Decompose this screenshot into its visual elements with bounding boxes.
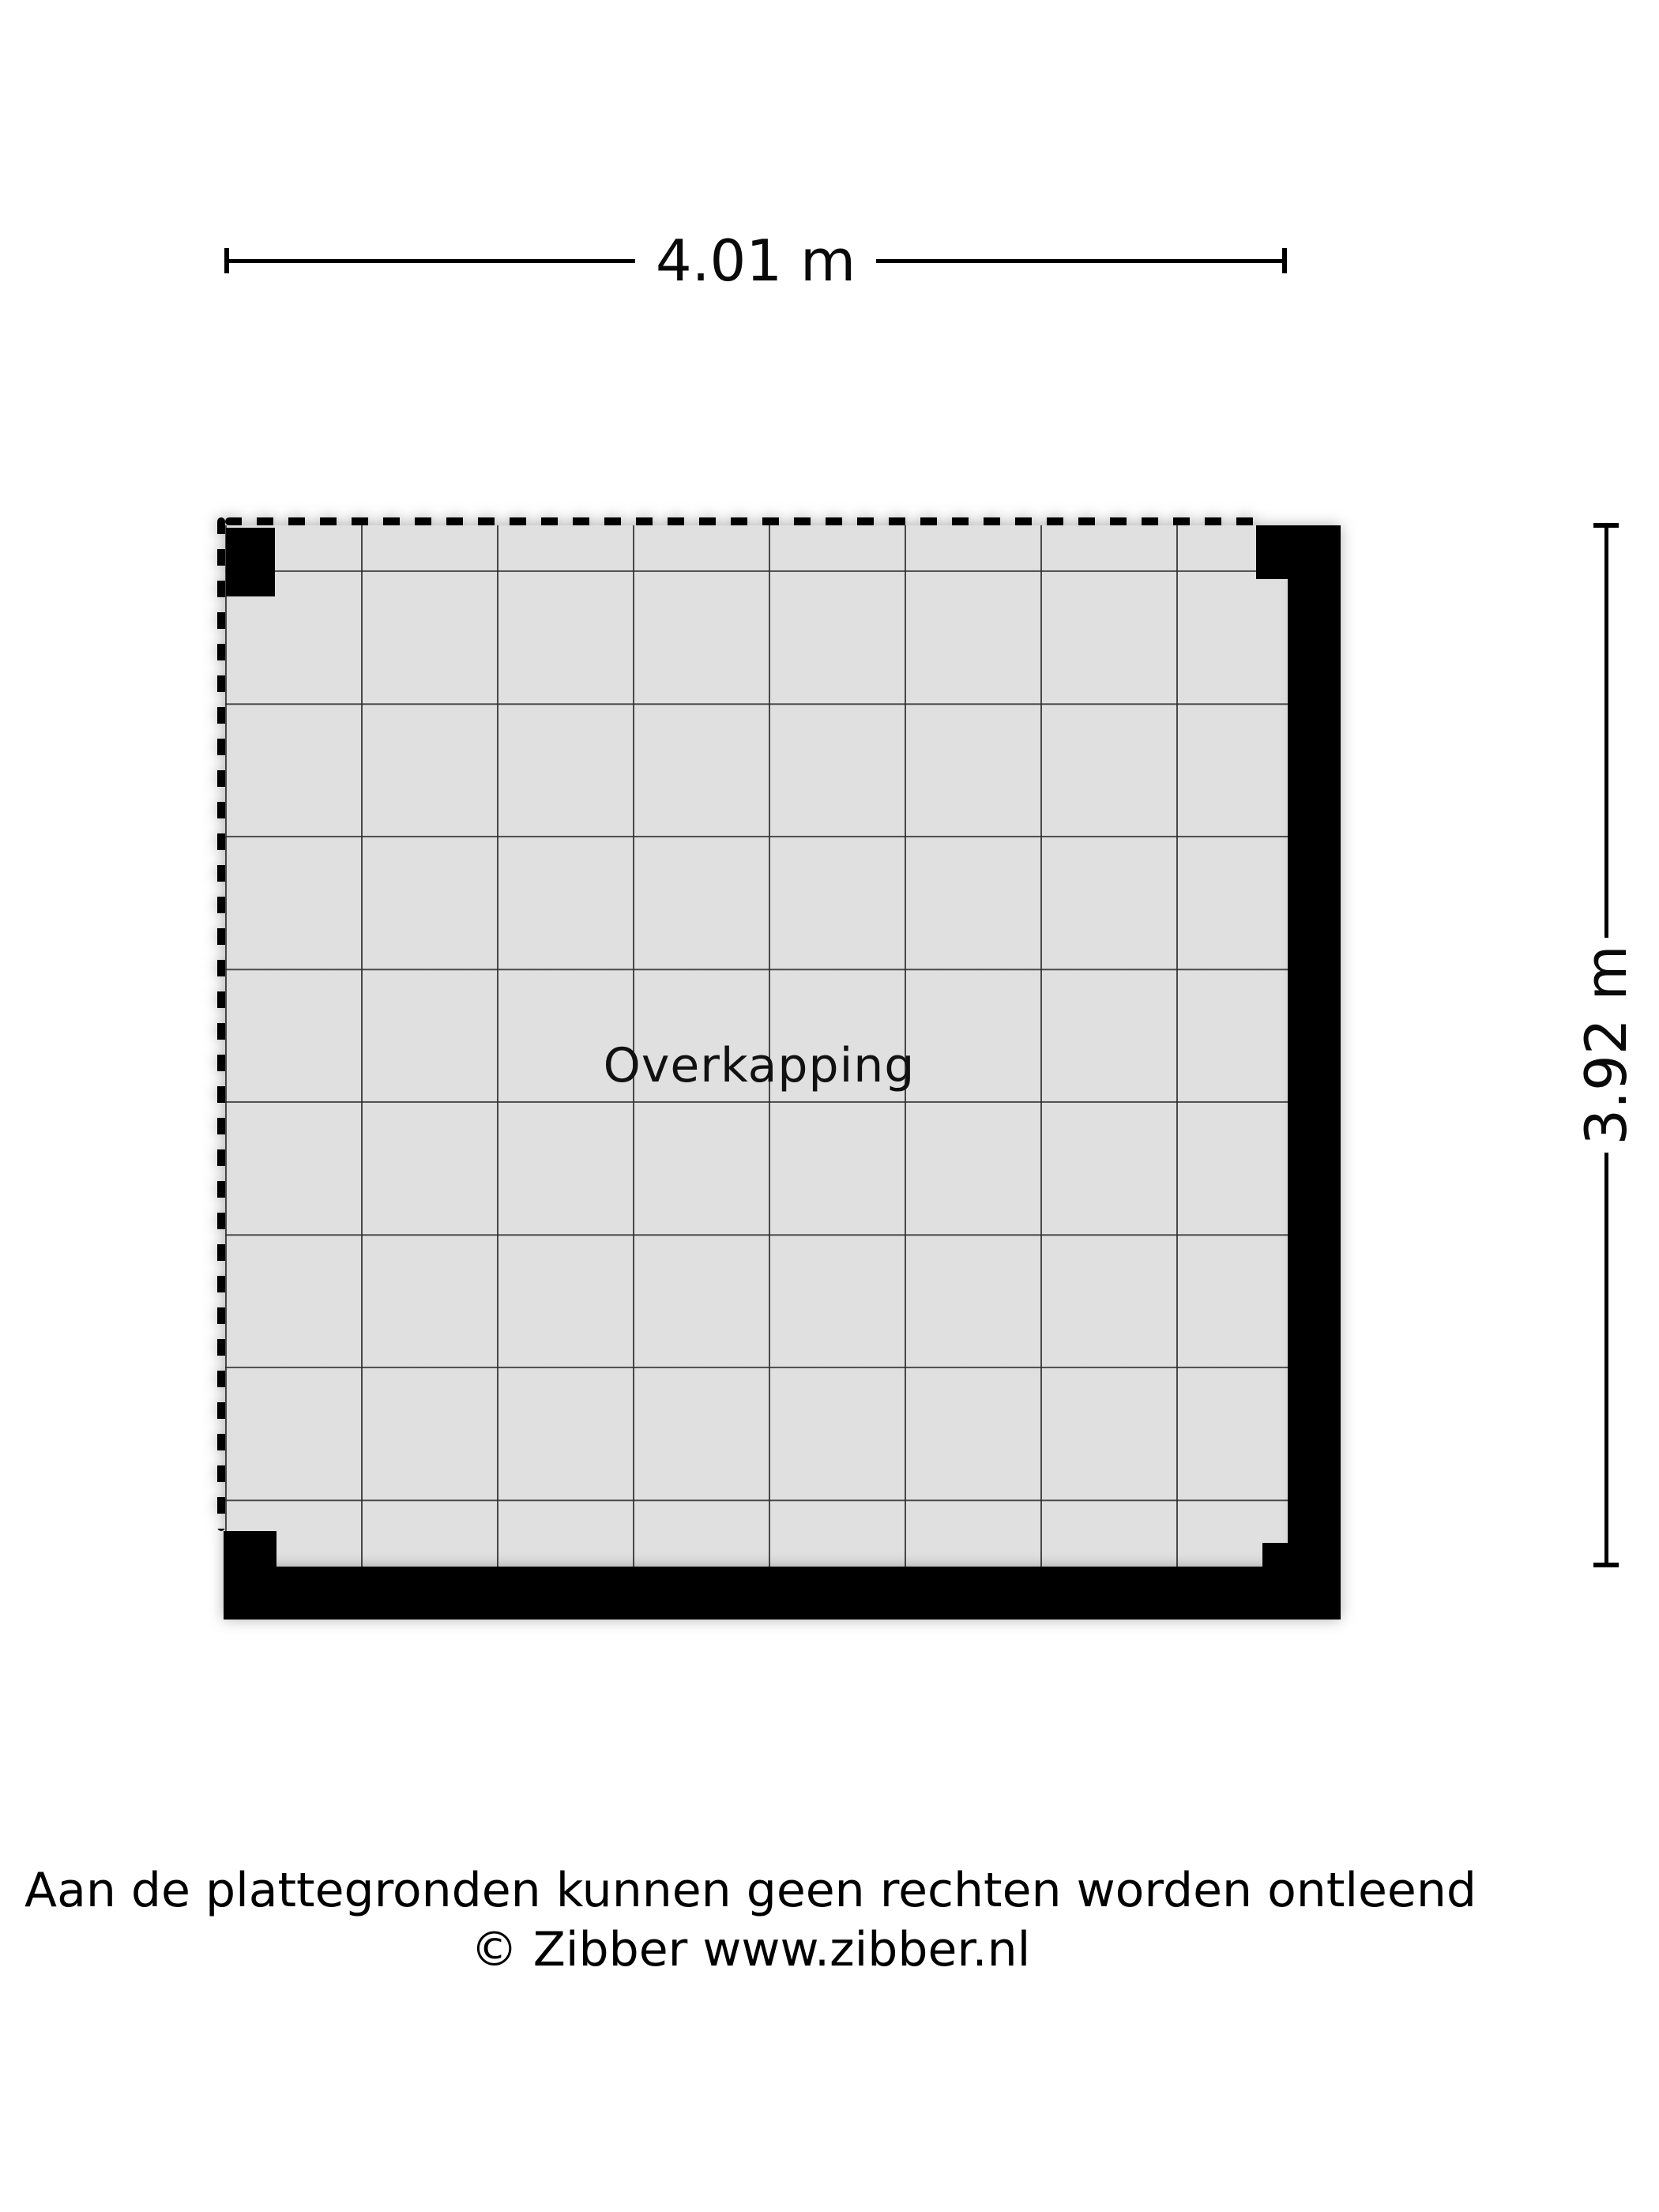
height-dimension-label-box: 3.92 m xyxy=(1593,938,1619,1153)
dimension-line-segment xyxy=(1604,1153,1608,1563)
dimension-line-segment xyxy=(229,259,635,263)
disclaimer-line-1: Aan de plattegronden kunnen geen rechten… xyxy=(24,1861,1477,1920)
dimension-line-segment xyxy=(1604,528,1608,938)
dimension-line-segment xyxy=(876,259,1282,263)
open-side-dashed-left xyxy=(217,517,225,1531)
wall-bottom xyxy=(225,1567,1341,1619)
disclaimer-line-2: © Zibber www.zibber.nl xyxy=(24,1920,1477,1980)
corner-post-bottom-left xyxy=(224,1531,276,1619)
dimension-end-tick xyxy=(1282,248,1287,273)
height-dimension: 3.92 m xyxy=(1593,523,1619,1567)
corner-post-top-right xyxy=(1256,525,1341,579)
room-name-label: Overkapping xyxy=(604,1038,916,1093)
width-dimension-label: 4.01 m xyxy=(635,228,876,294)
disclaimer: Aan de plattegronden kunnen geen rechten… xyxy=(24,1861,1477,1980)
height-dimension-label: 3.92 m xyxy=(1573,945,1639,1145)
corner-step-bottom-right xyxy=(1262,1543,1341,1619)
floorplan-page: 4.01 m Overkapping 3.92 m Aan de platteg… xyxy=(0,0,1659,2212)
corner-post-top-left xyxy=(226,528,275,596)
wall-right xyxy=(1288,525,1341,1619)
width-dimension: 4.01 m xyxy=(224,228,1287,294)
open-side-dashed-top xyxy=(225,517,1256,525)
dimension-end-tick xyxy=(1593,1563,1619,1567)
